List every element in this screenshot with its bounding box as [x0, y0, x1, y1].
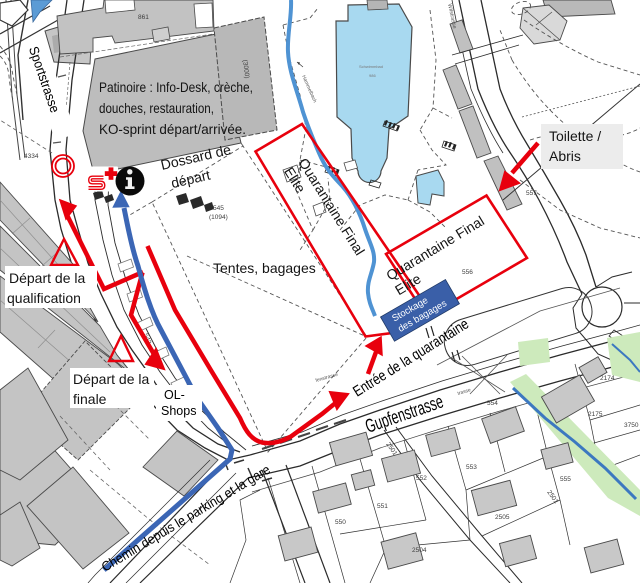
svg-text:986: 986	[369, 73, 376, 78]
svg-text:Départ de la: Départ de la	[73, 371, 149, 387]
svg-text:finale: finale	[73, 391, 107, 407]
svg-text:861: 861	[138, 14, 149, 21]
svg-text:douches, restauration,: douches, restauration,	[99, 100, 214, 116]
svg-text:553: 553	[466, 464, 477, 471]
svg-text:Abris: Abris	[549, 148, 581, 164]
svg-text:Toilette /: Toilette /	[549, 128, 601, 144]
svg-text:Départ de la: Départ de la	[9, 270, 85, 286]
svg-text:556: 556	[462, 269, 473, 276]
svg-text:Shops: Shops	[161, 404, 196, 418]
svg-text:554: 554	[487, 400, 498, 407]
svg-text:Patinoire : Info-Desk, crèche,: Patinoire : Info-Desk, crèche,	[99, 79, 253, 95]
svg-text:2504: 2504	[412, 547, 427, 554]
svg-text:Schwimmbad: Schwimmbad	[359, 64, 383, 69]
svg-text:545: 545	[213, 205, 224, 212]
svg-text:2174: 2174	[600, 375, 615, 382]
svg-text:2175: 2175	[588, 411, 603, 418]
svg-text:KO-sprint départ/arrivée.: KO-sprint départ/arrivée.	[99, 121, 246, 137]
svg-text:4334: 4334	[24, 153, 39, 160]
svg-text:(1094): (1094)	[209, 214, 228, 221]
svg-text:qualification: qualification	[7, 290, 81, 306]
svg-text:552: 552	[416, 475, 427, 482]
svg-text:551: 551	[377, 503, 388, 510]
svg-text:550: 550	[335, 519, 346, 526]
svg-text:555: 555	[560, 476, 571, 483]
svg-text:2505: 2505	[495, 514, 510, 521]
svg-text:Tentes, bagages: Tentes, bagages	[213, 260, 316, 276]
svg-text:557: 557	[526, 190, 537, 197]
svg-text:OL-: OL-	[164, 388, 185, 402]
svg-text:3750: 3750	[624, 422, 639, 429]
